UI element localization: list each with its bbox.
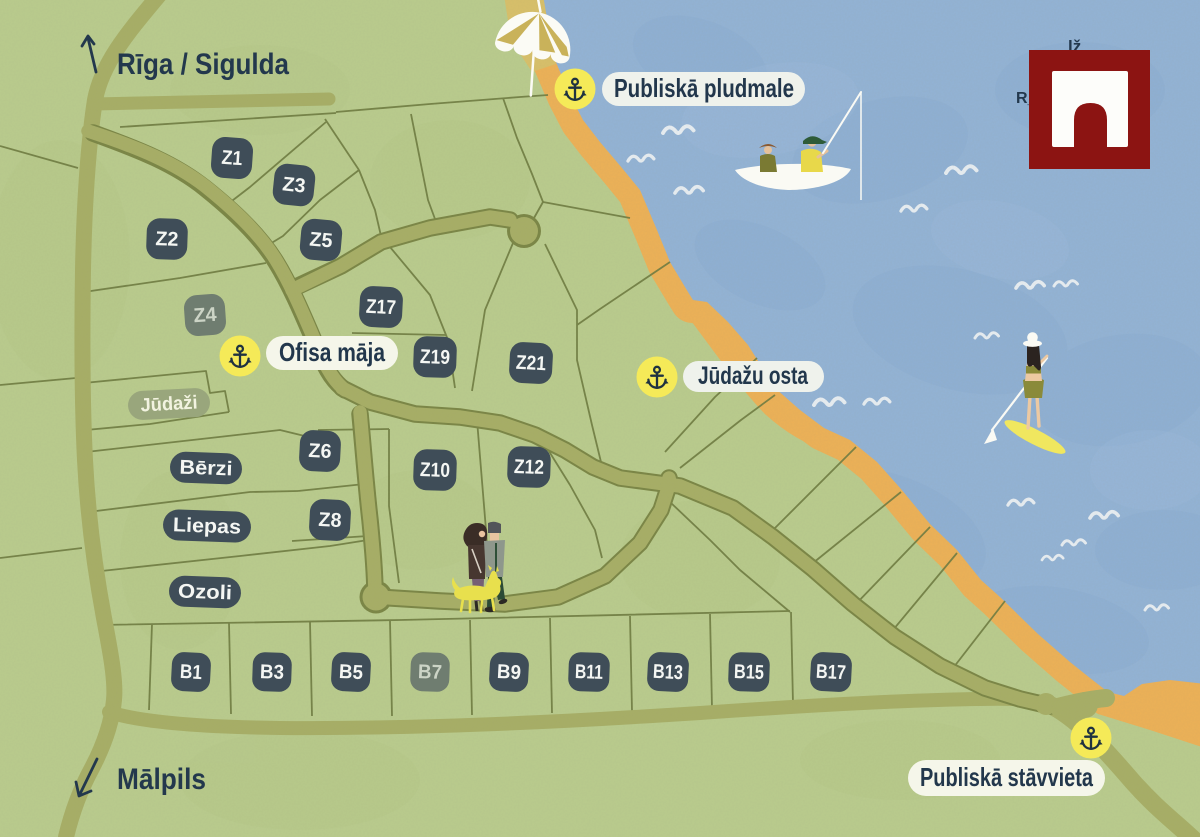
svg-text:Z1: Z1 [221,147,243,170]
svg-text:Jūdažu osta: Jūdažu osta [698,362,809,390]
svg-text:Z12: Z12 [514,456,545,479]
svg-text:Z5: Z5 [309,229,334,253]
svg-text:Z19: Z19 [420,346,451,369]
svg-text:B3: B3 [260,661,285,684]
svg-text:B1: B1 [179,661,202,684]
svg-text:Z10: Z10 [420,459,451,482]
svg-text:Z6: Z6 [308,440,332,463]
svg-text:B13: B13 [652,661,683,685]
svg-text:Mālpils: Mālpils [117,763,206,796]
svg-text:Ozoli: Ozoli [178,581,233,605]
svg-text:B11: B11 [575,661,604,684]
svg-text:Z17: Z17 [365,296,396,320]
svg-text:Z3: Z3 [281,173,306,197]
svg-text:B15: B15 [734,661,765,684]
svg-text:B9: B9 [496,661,521,684]
svg-text:Z21: Z21 [515,352,546,376]
svg-text:B5: B5 [338,661,363,684]
svg-text:Publiskā stāvvieta: Publiskā stāvvieta [920,762,1093,792]
svg-text:Z8: Z8 [318,509,342,532]
svg-text:Z2: Z2 [155,228,179,251]
svg-text:Z4: Z4 [193,304,218,328]
svg-text:B7: B7 [418,661,443,684]
svg-text:Jūdaži: Jūdaži [140,393,198,417]
svg-text:Publiskā pludmale: Publiskā pludmale [614,73,794,103]
svg-text:Liepas: Liepas [173,514,242,538]
svg-text:Ofisa māja: Ofisa māja [279,337,385,367]
svg-text:B17: B17 [815,661,846,685]
svg-text:Bērzi: Bērzi [179,457,233,481]
svg-text:Rīga / Sigulda: Rīga / Sigulda [117,48,289,81]
